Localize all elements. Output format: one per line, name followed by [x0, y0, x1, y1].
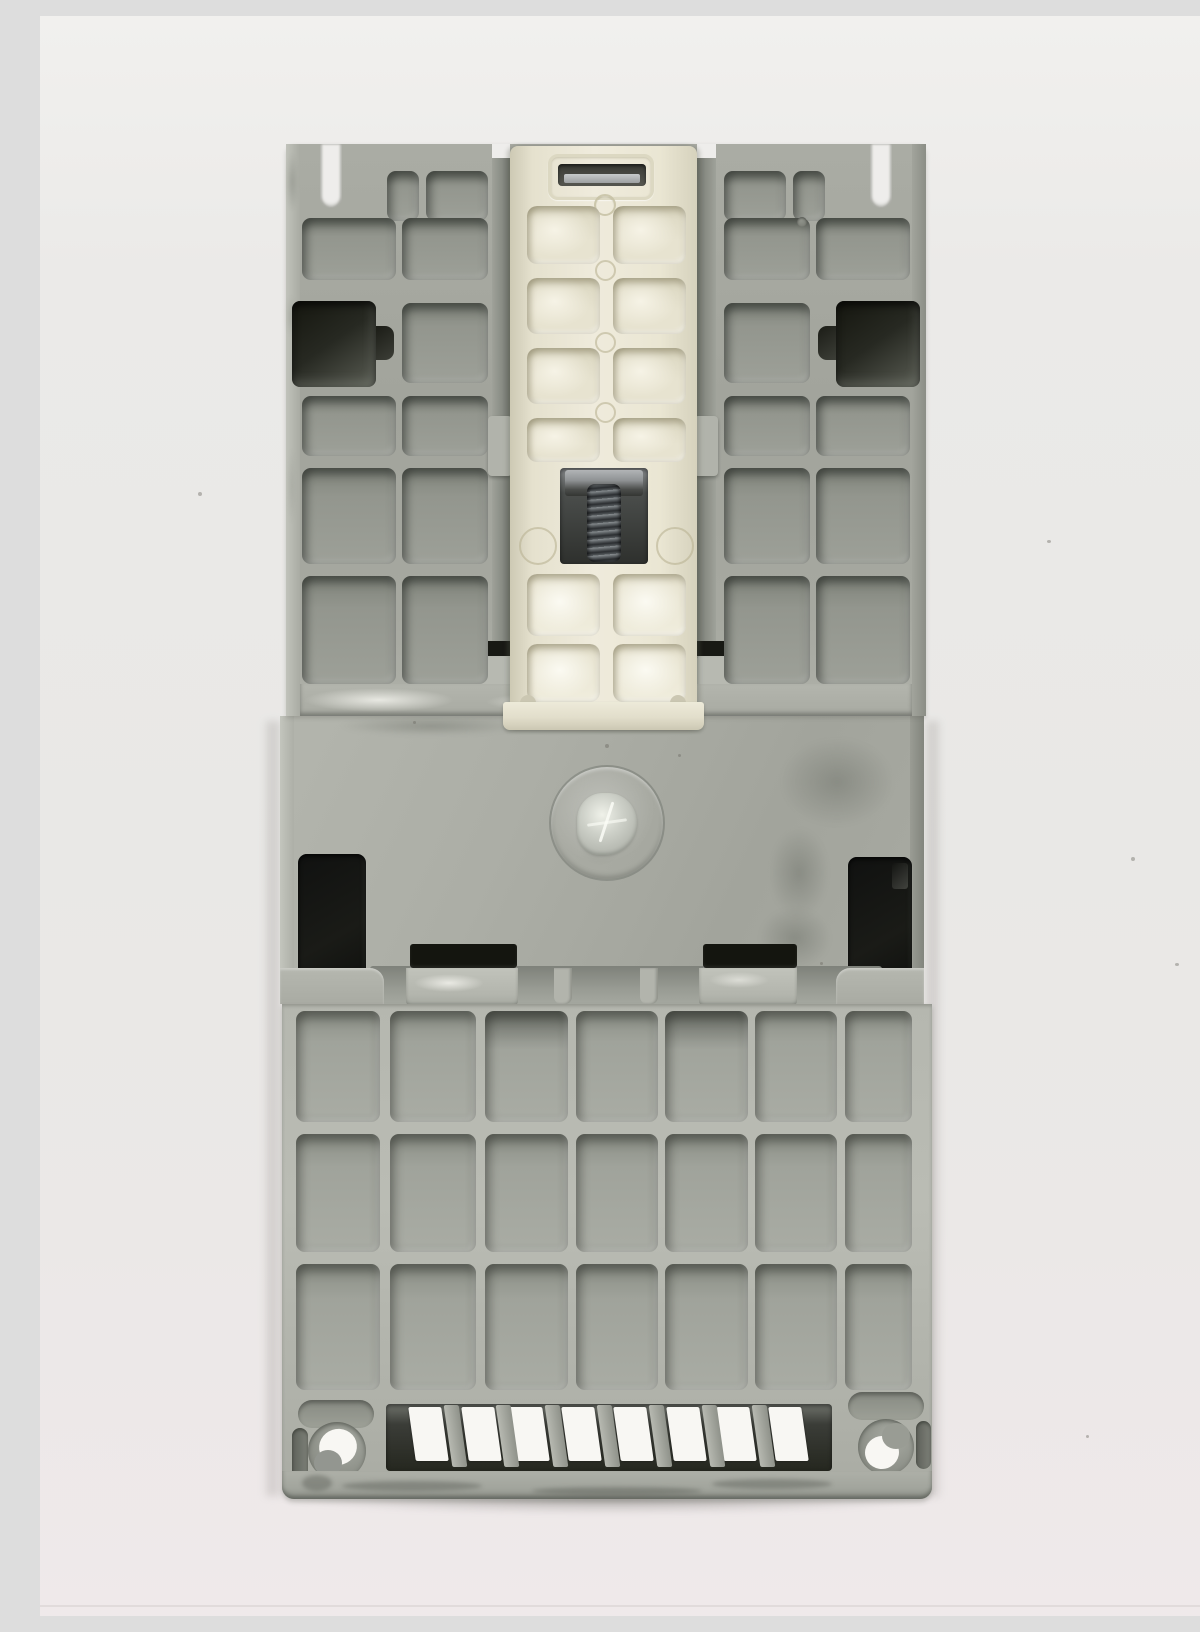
dirt-smudge — [336, 716, 526, 736]
corner-ledge-left — [280, 968, 384, 1004]
backdrop-speck — [1047, 540, 1051, 543]
rib-cell — [302, 468, 396, 564]
mid-panel — [280, 716, 924, 1004]
clip-foot — [503, 702, 704, 730]
rib-cell — [724, 576, 810, 684]
clip-cell — [613, 574, 686, 636]
grid-cell — [665, 1011, 748, 1122]
dirt-smudge — [778, 736, 896, 828]
corner-ledge-right — [836, 968, 924, 1004]
dirt-smudge — [712, 1479, 832, 1489]
bottom-rail — [282, 1471, 932, 1499]
dirt-smudge — [342, 1481, 482, 1491]
unit-shadow-left — [266, 721, 280, 1496]
grid-cell — [755, 1011, 837, 1122]
molded-circle-left — [519, 527, 557, 565]
grid-cell — [845, 1264, 912, 1390]
panel-speck — [605, 744, 609, 748]
dirt-smudge — [532, 1487, 702, 1495]
panel-speck — [820, 962, 823, 965]
mold-junction-circle — [595, 402, 616, 423]
channel-tab — [488, 416, 512, 476]
rib-cell — [302, 218, 396, 280]
panel-left-edge — [280, 716, 294, 1004]
grid-cell — [390, 1134, 476, 1252]
latch-slot-right — [703, 944, 797, 968]
grid-cell — [485, 1264, 568, 1390]
rib-cell — [402, 576, 488, 684]
rib-cell — [724, 218, 810, 280]
mounting-hole-right — [858, 1419, 914, 1475]
rib-cell — [402, 468, 488, 564]
grid-cell — [845, 1134, 912, 1252]
rib-cell — [302, 396, 396, 456]
backdrop-speck — [1175, 963, 1179, 966]
mold-junction-circle — [595, 260, 616, 281]
grid-cell — [845, 1011, 912, 1122]
rib-cell — [402, 303, 488, 383]
clip-cell — [527, 644, 600, 702]
rib-cell — [724, 468, 810, 564]
panel-speck — [413, 721, 416, 724]
grid-cell — [576, 1134, 658, 1252]
paint-smear — [709, 972, 769, 988]
hole-inner-wall — [882, 1423, 910, 1449]
dirt-smudge — [286, 150, 298, 214]
grid-cell — [296, 1011, 380, 1122]
rail-notch-right — [870, 144, 892, 208]
circular-mold-emblem — [549, 765, 665, 881]
channel-tab — [694, 416, 718, 476]
rib-cell — [402, 218, 488, 280]
grid-cell — [576, 1011, 658, 1122]
mold-dot — [797, 217, 807, 227]
pocket-keyhole-notch — [818, 326, 836, 360]
grid-cell — [576, 1264, 658, 1390]
rib-cell — [724, 303, 810, 383]
corner-slot-right — [916, 1421, 931, 1469]
grid-cell — [296, 1264, 380, 1390]
backdrop-speck — [1086, 1435, 1089, 1438]
bottom-grid-section — [282, 1004, 932, 1499]
clip-cell — [613, 348, 686, 404]
grid-cell — [390, 1011, 476, 1122]
rib-cell — [302, 576, 396, 684]
clip-cell — [527, 348, 600, 404]
corner-recess-right — [848, 1392, 924, 1420]
clip-top-slot — [558, 164, 646, 186]
clip-cell — [527, 418, 600, 462]
latch-slot-left — [410, 944, 517, 968]
clip-cell — [613, 418, 686, 462]
rib-cell — [816, 576, 910, 684]
grid-cell — [665, 1264, 748, 1390]
rib-cell — [426, 171, 488, 221]
rib-cell — [816, 396, 910, 456]
latch-tab-right — [699, 968, 797, 1006]
paint-smear — [304, 688, 454, 712]
panel-speck — [678, 754, 681, 757]
mounting-pocket-left — [292, 301, 376, 387]
mounting-pocket-right — [836, 301, 920, 387]
rib-cell — [402, 396, 488, 456]
center-post — [640, 968, 658, 1004]
center-post — [554, 968, 572, 1004]
housing-right-wall — [912, 144, 926, 716]
grid-cell — [485, 1011, 568, 1122]
rail-notch-left — [320, 144, 342, 208]
housing-left-wall — [286, 144, 300, 716]
mold-junction-circle — [595, 332, 616, 353]
photo-scene: Rear view photograph of a light-gray mol… — [40, 16, 1200, 1616]
latch-tab-left — [406, 968, 518, 1006]
panel-right-edge — [910, 716, 924, 1004]
clip-cell — [527, 206, 600, 264]
backdrop-speck — [1131, 857, 1135, 861]
grid-cell — [390, 1264, 476, 1390]
rib-cell — [387, 171, 419, 221]
molded-circle-right — [656, 527, 694, 565]
din-rail-clip — [510, 146, 697, 730]
clip-cell — [527, 278, 600, 334]
grid-cell — [755, 1134, 837, 1252]
rib-cell — [724, 171, 786, 221]
clip-cell — [613, 206, 686, 264]
dirt-smudge — [302, 1475, 332, 1491]
pocket-keyhole-notch — [376, 326, 394, 360]
coil-spring — [587, 484, 621, 562]
rib-cell — [816, 218, 910, 280]
backdrop-paper-edge — [40, 1605, 1200, 1607]
dirt-smudge — [287, 444, 296, 528]
backdrop-speck — [198, 492, 202, 496]
grid-cell — [485, 1134, 568, 1252]
rib-cell — [816, 468, 910, 564]
clip-cell — [613, 644, 686, 702]
emblem-melt-mark — [577, 793, 637, 855]
clip-cell — [613, 278, 686, 334]
grid-cell — [665, 1134, 748, 1252]
grid-cell — [296, 1134, 380, 1252]
aperture-inner-wall — [892, 863, 908, 889]
paint-smear — [414, 974, 484, 992]
rail-metal-bar — [564, 174, 640, 183]
clip-cell — [527, 574, 600, 636]
grid-cell — [755, 1264, 837, 1390]
spring-window — [560, 468, 648, 564]
rib-cell — [724, 396, 810, 456]
rib-cell — [793, 171, 825, 221]
